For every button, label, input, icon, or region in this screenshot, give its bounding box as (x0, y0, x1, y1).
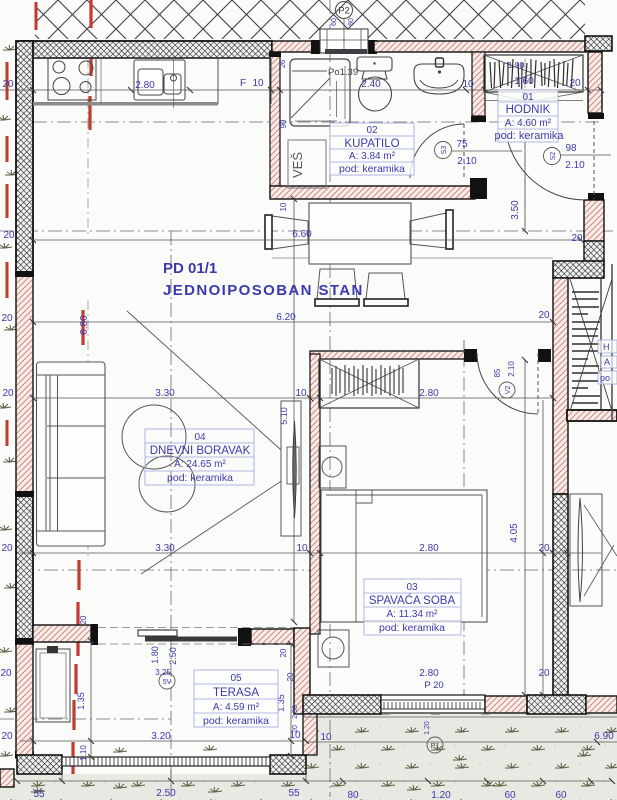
svg-text:2.50: 2.50 (168, 647, 178, 665)
svg-text:2.30: 2.30 (292, 705, 299, 719)
svg-text:pod: keramika: pod: keramika (379, 622, 445, 634)
svg-text:5.10: 5.10 (279, 407, 289, 425)
svg-text:3.30: 3.30 (155, 388, 175, 399)
svg-text:04: 04 (194, 432, 206, 443)
svg-text:2.10: 2.10 (507, 361, 516, 377)
svg-text:5V: 5V (163, 679, 172, 686)
svg-text:20: 20 (2, 79, 14, 90)
svg-text:20: 20 (571, 233, 583, 244)
svg-text:2.80: 2.80 (419, 668, 439, 679)
svg-text:3.25: 3.25 (155, 668, 171, 677)
svg-text:90: 90 (279, 119, 288, 128)
svg-text:60: 60 (504, 790, 516, 800)
svg-text:2.40: 2.40 (361, 79, 381, 90)
svg-text:10: 10 (320, 732, 332, 743)
svg-text:10: 10 (295, 388, 307, 399)
svg-text:20: 20 (79, 615, 88, 624)
svg-text:55: 55 (288, 788, 300, 799)
svg-text:75: 75 (456, 139, 468, 150)
svg-text:2.80: 2.80 (135, 80, 155, 91)
svg-text:2.10: 2.10 (565, 160, 585, 171)
svg-text:pod: keramika: pod: keramika (203, 715, 269, 727)
svg-text:A: 4.59 m²: A: 4.59 m² (213, 702, 260, 713)
svg-text:2.10: 2.10 (457, 156, 477, 167)
svg-text:VEŠ: VEŠ (290, 152, 305, 178)
svg-text:10: 10 (279, 202, 288, 211)
svg-text:20: 20 (1, 731, 13, 742)
svg-text:Po1.39: Po1.39 (328, 67, 358, 78)
svg-text:05: 05 (230, 673, 242, 684)
svg-text:A: 4.60 m²: A: 4.60 m² (505, 118, 552, 129)
svg-text:1.80: 1.80 (150, 646, 160, 664)
svg-text:A: 24.65 m²: A: 24.65 m² (174, 459, 226, 470)
svg-text:60: 60 (555, 790, 567, 800)
svg-text:20: 20 (286, 672, 295, 681)
svg-text:S2: S2 (550, 152, 557, 161)
svg-text:3.50: 3.50 (510, 200, 521, 220)
svg-text:10: 10 (462, 79, 474, 90)
svg-text:P 20: P 20 (424, 680, 443, 691)
svg-text:20: 20 (3, 230, 15, 241)
svg-text:1.20: 1.20 (424, 721, 431, 735)
svg-text:10: 10 (296, 543, 308, 554)
svg-text:02: 02 (366, 125, 378, 136)
svg-text:80: 80 (347, 790, 359, 800)
svg-text:20: 20 (279, 648, 288, 657)
svg-text:3.20: 3.20 (151, 731, 171, 742)
svg-text:pod: keramika: pod: keramika (494, 130, 564, 142)
svg-text:80: 80 (348, 18, 355, 26)
svg-text:2.80: 2.80 (419, 543, 439, 554)
svg-text:S3: S3 (441, 146, 448, 155)
svg-text:6.20: 6.20 (276, 312, 296, 323)
svg-text:2.50: 2.50 (156, 788, 176, 799)
svg-text:26: 26 (278, 60, 287, 68)
svg-text:2.80: 2.80 (419, 388, 439, 399)
svg-text:01: 01 (522, 92, 534, 103)
svg-text:H: H (603, 342, 610, 352)
svg-text:20: 20 (569, 78, 581, 89)
svg-text:A: 3.84 m²: A: 3.84 m² (349, 151, 396, 162)
svg-text:pod: keramika: pod: keramika (167, 472, 233, 484)
svg-text:PD 01/1: PD 01/1 (163, 260, 217, 277)
svg-text:10: 10 (252, 78, 264, 89)
svg-text:6.60: 6.60 (292, 229, 312, 240)
svg-text:JEDNOIPOSOBAN STAN: JEDNOIPOSOBAN STAN (163, 282, 364, 299)
svg-text:60: 60 (331, 18, 338, 26)
svg-text:20: 20 (1, 543, 13, 554)
svg-text:pod: keramika: pod: keramika (339, 163, 405, 175)
svg-text:20: 20 (538, 543, 550, 554)
svg-text:po: po (600, 373, 610, 383)
svg-text:TERASA: TERASA (213, 687, 259, 699)
svg-text:20: 20 (538, 668, 550, 679)
svg-text:1.10: 1.10 (79, 745, 88, 761)
svg-text:1.60: 1.60 (514, 76, 534, 87)
svg-text:KUPATILO: KUPATILO (344, 138, 399, 150)
svg-text:98: 98 (565, 143, 577, 154)
svg-text:A: A (604, 357, 610, 367)
svg-text:V2: V2 (505, 386, 512, 395)
svg-text:4.05: 4.05 (509, 523, 520, 543)
svg-text:DNEVNI BORAVAK: DNEVNI BORAVAK (150, 445, 251, 457)
svg-text:10: 10 (289, 730, 301, 741)
svg-text:55: 55 (33, 789, 45, 800)
svg-text:HODNIK: HODNIK (506, 104, 551, 116)
svg-text:3.30: 3.30 (155, 543, 175, 554)
svg-text:F: F (240, 78, 246, 89)
svg-text:1.90: 1.90 (508, 60, 525, 70)
svg-text:6.90: 6.90 (594, 731, 614, 742)
svg-text:20: 20 (538, 310, 550, 321)
svg-text:20: 20 (0, 668, 12, 679)
svg-text:P1: P1 (431, 743, 440, 750)
svg-text:1.20: 1.20 (431, 790, 451, 800)
svg-text:P2: P2 (338, 6, 350, 17)
svg-text:85: 85 (493, 368, 502, 377)
svg-text:6.80: 6.80 (79, 315, 90, 335)
svg-text:03: 03 (406, 582, 418, 593)
svg-text:SPAVAĆA SOBA: SPAVAĆA SOBA (369, 594, 456, 607)
svg-text:A: 11.34 m²: A: 11.34 m² (387, 609, 439, 620)
svg-text:1.35: 1.35 (76, 692, 86, 710)
svg-text:20: 20 (2, 388, 14, 399)
svg-text:20: 20 (1, 313, 13, 324)
